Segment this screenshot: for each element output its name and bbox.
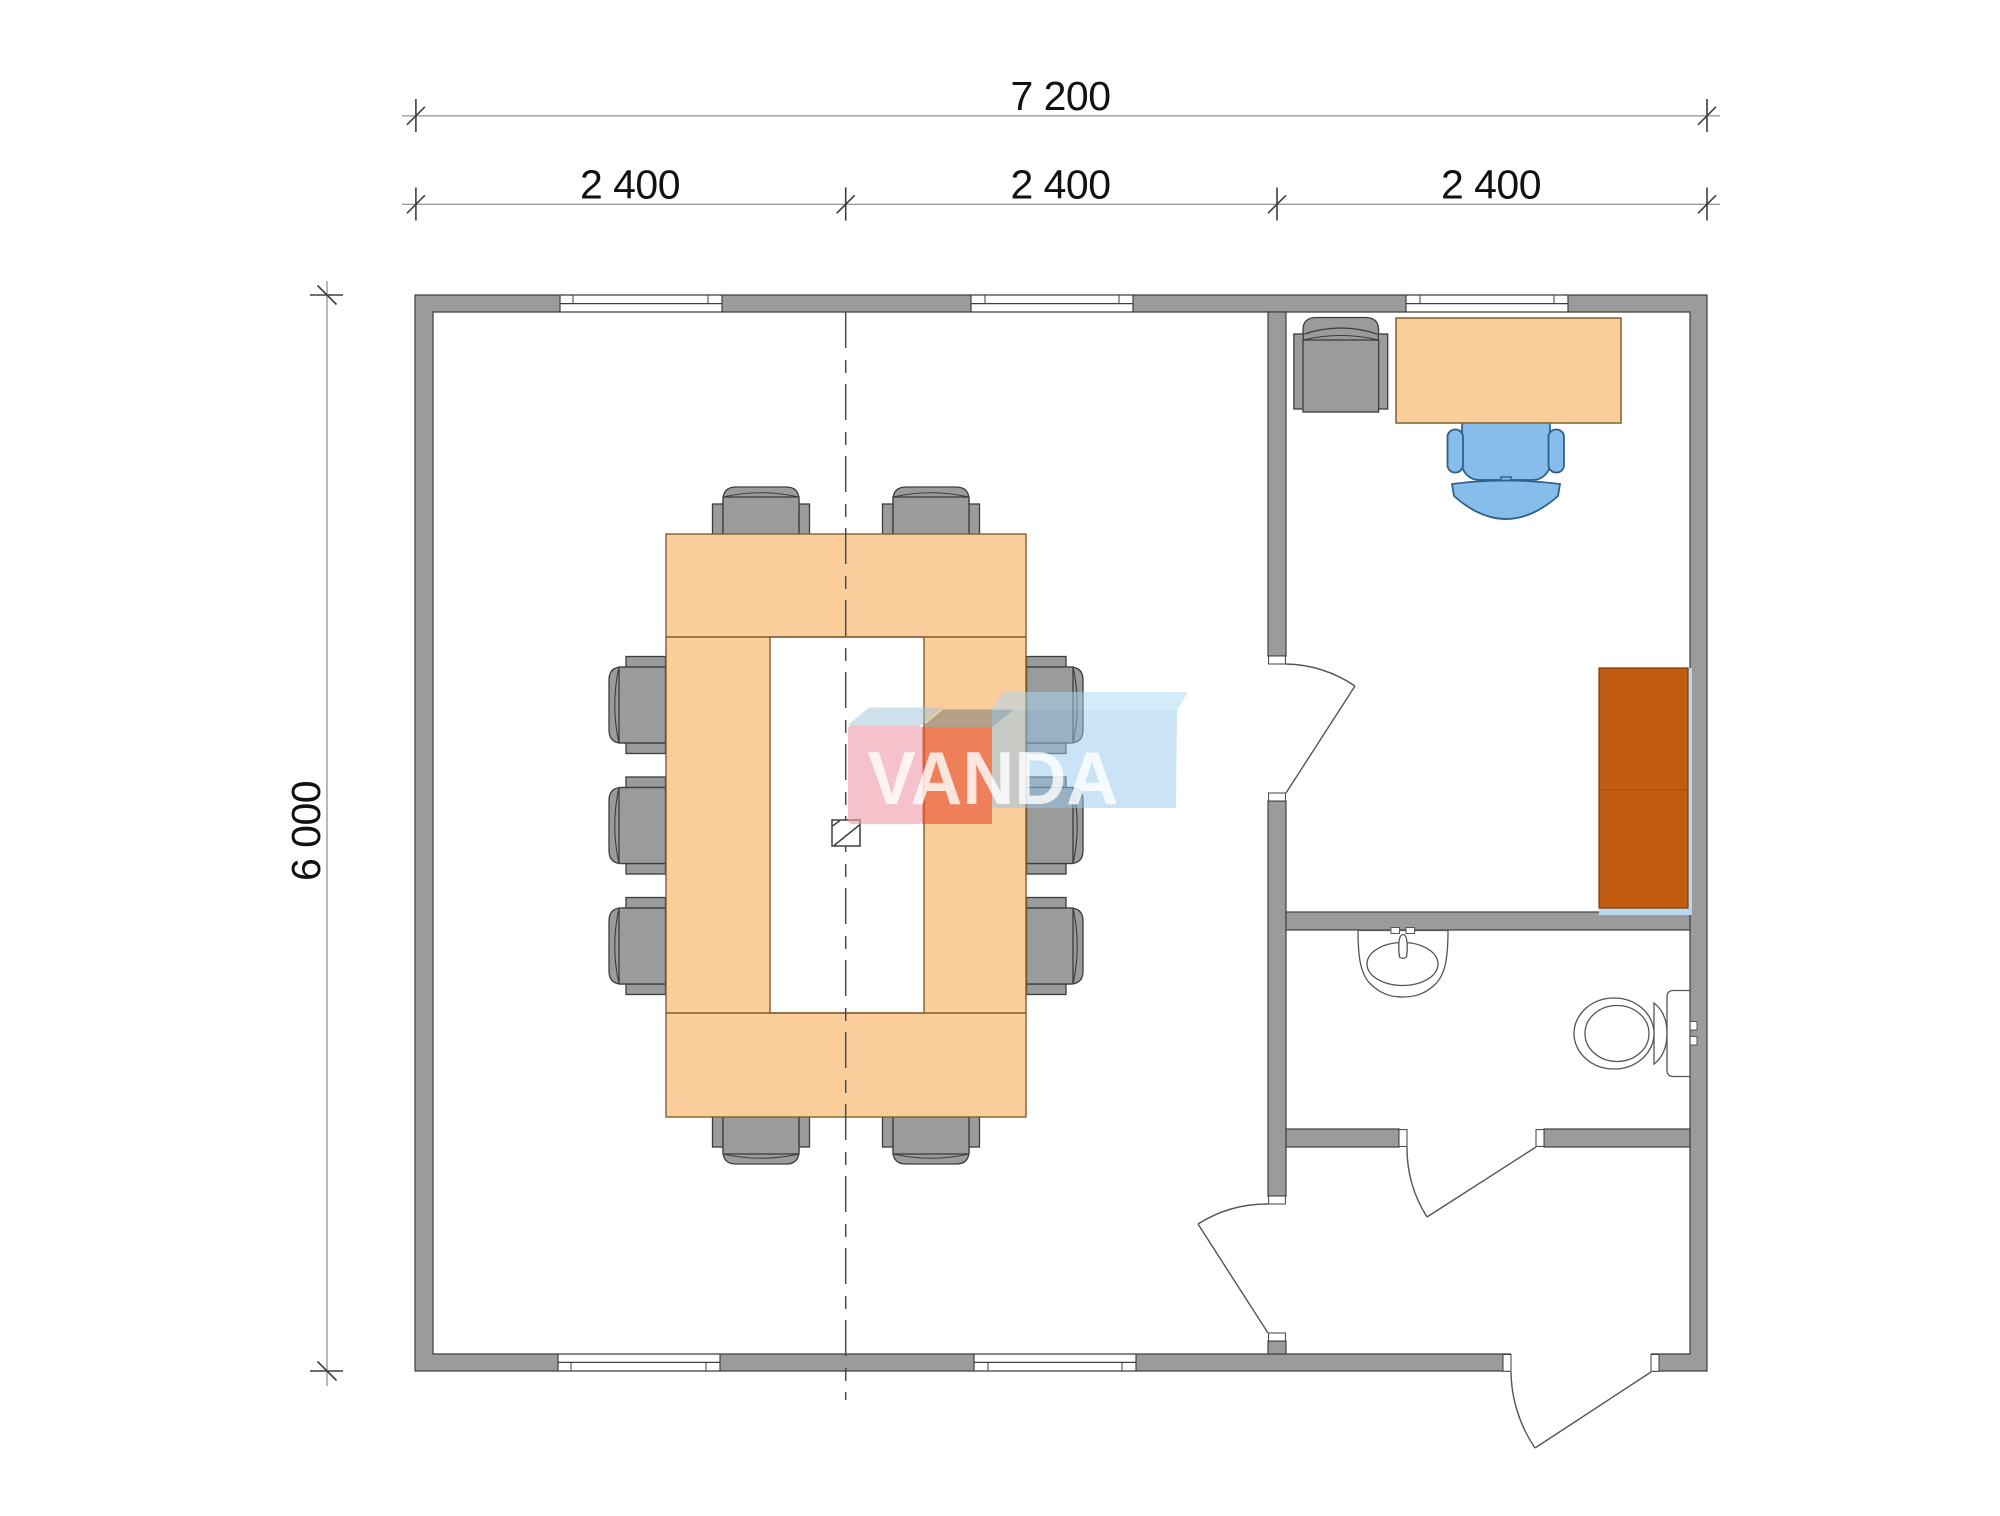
svg-text:VANDA: VANDA bbox=[868, 736, 1119, 821]
svg-text:7 200: 7 200 bbox=[1010, 73, 1110, 119]
svg-text:2 400: 2 400 bbox=[580, 162, 680, 208]
svg-text:2 400: 2 400 bbox=[1010, 162, 1110, 208]
svg-text:2 400: 2 400 bbox=[1441, 162, 1541, 208]
svg-text:6 000: 6 000 bbox=[283, 781, 329, 881]
